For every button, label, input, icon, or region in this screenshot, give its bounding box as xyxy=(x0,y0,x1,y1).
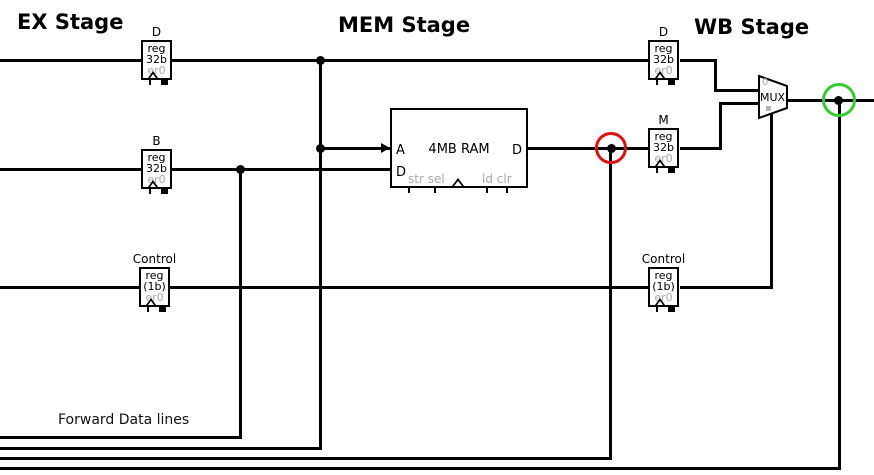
wire xyxy=(0,457,612,460)
junction-dot xyxy=(316,56,325,65)
register-label: D xyxy=(659,25,668,39)
register-label: D xyxy=(152,25,161,39)
forward-data-lines-label: Forward Data lines xyxy=(58,412,189,428)
wire xyxy=(0,59,650,62)
register-ex-b: B reg 32b er0 xyxy=(141,149,172,189)
clock-triangle-icon xyxy=(655,71,665,78)
register-ex-d: D reg 32b er0 xyxy=(141,40,172,80)
enable-pin xyxy=(159,307,166,312)
clock-triangle-icon xyxy=(655,298,665,305)
wb-stage-title: WB Stage xyxy=(694,15,809,39)
wire xyxy=(0,436,241,439)
mux-select-pin xyxy=(766,106,771,111)
wire xyxy=(770,113,773,289)
enable-pin xyxy=(161,189,168,194)
register-wb-m: M reg 32b er0 xyxy=(648,128,679,168)
clock-triangle-icon xyxy=(452,178,464,186)
clock-pin xyxy=(149,80,151,85)
ram-ctrl-ld-clr: ld clr xyxy=(482,172,512,186)
clock-pin xyxy=(656,307,658,312)
clock-triangle-icon xyxy=(655,159,665,166)
wire xyxy=(680,147,722,150)
register-wb-control: Control reg (1b) er0 xyxy=(648,267,679,307)
ram-block: A D D 4MB RAM str sel ld clr xyxy=(390,108,528,188)
ram-str-pin xyxy=(408,188,410,193)
register-ex-control: Control reg (1b) er0 xyxy=(139,267,170,307)
wire xyxy=(680,59,717,62)
wire xyxy=(527,147,650,150)
wire xyxy=(609,147,612,460)
register-box: reg (1b) er0 xyxy=(648,267,679,307)
wire xyxy=(838,99,841,470)
wire xyxy=(0,467,841,470)
register-label: M xyxy=(658,113,668,127)
ram-port-d-in: D xyxy=(396,165,406,180)
register-label: B xyxy=(152,134,160,148)
red-circle-annotation xyxy=(595,132,627,164)
ex-stage-title: EX Stage xyxy=(17,10,123,34)
clock-pin xyxy=(656,168,658,173)
enable-pin xyxy=(668,80,675,85)
register-box: reg 32b er0 xyxy=(141,149,172,189)
register-label: Control xyxy=(642,252,685,266)
junction-dot xyxy=(316,144,325,153)
wire xyxy=(0,168,392,171)
enable-pin xyxy=(161,80,168,85)
register-box: reg 32b er0 xyxy=(648,40,679,80)
wire xyxy=(714,59,717,92)
circuit-diagram: EX Stage MEM Stage WB Stage D reg 32b er… xyxy=(0,0,874,475)
mem-stage-title: MEM Stage xyxy=(338,13,470,37)
clock-triangle-icon xyxy=(146,298,156,305)
register-label: Control xyxy=(133,252,176,266)
ram-a-input-pin-icon xyxy=(381,143,390,153)
wire xyxy=(319,59,322,450)
clock-pin xyxy=(656,80,658,85)
clock-pin xyxy=(147,307,149,312)
register-box: reg (1b) er0 xyxy=(139,267,170,307)
ram-ld-pin xyxy=(486,188,488,193)
green-circle-annotation xyxy=(822,83,856,117)
ram-name: 4MB RAM xyxy=(392,142,526,157)
register-box: reg 32b er0 xyxy=(648,128,679,168)
enable-pin xyxy=(668,168,675,173)
ram-clr-pin xyxy=(506,188,508,193)
ram-ctrl-str-sel: str sel xyxy=(408,172,445,186)
junction-dot xyxy=(236,165,245,174)
mux-input0-label: 0 xyxy=(762,77,768,88)
clock-triangle-icon xyxy=(148,180,158,187)
wire xyxy=(719,102,761,105)
enable-pin xyxy=(668,307,675,312)
ram-sel-pin xyxy=(434,188,436,193)
register-wb-d: D reg 32b er0 xyxy=(648,40,679,80)
wire xyxy=(0,286,650,289)
wire xyxy=(714,89,761,92)
wire xyxy=(680,286,773,289)
wire xyxy=(719,102,722,150)
mux-label: MUX xyxy=(757,91,788,104)
wire xyxy=(0,447,322,450)
wire xyxy=(239,168,242,439)
clock-triangle-icon xyxy=(148,71,158,78)
clock-pin xyxy=(149,189,151,194)
register-box: reg 32b er0 xyxy=(141,40,172,80)
